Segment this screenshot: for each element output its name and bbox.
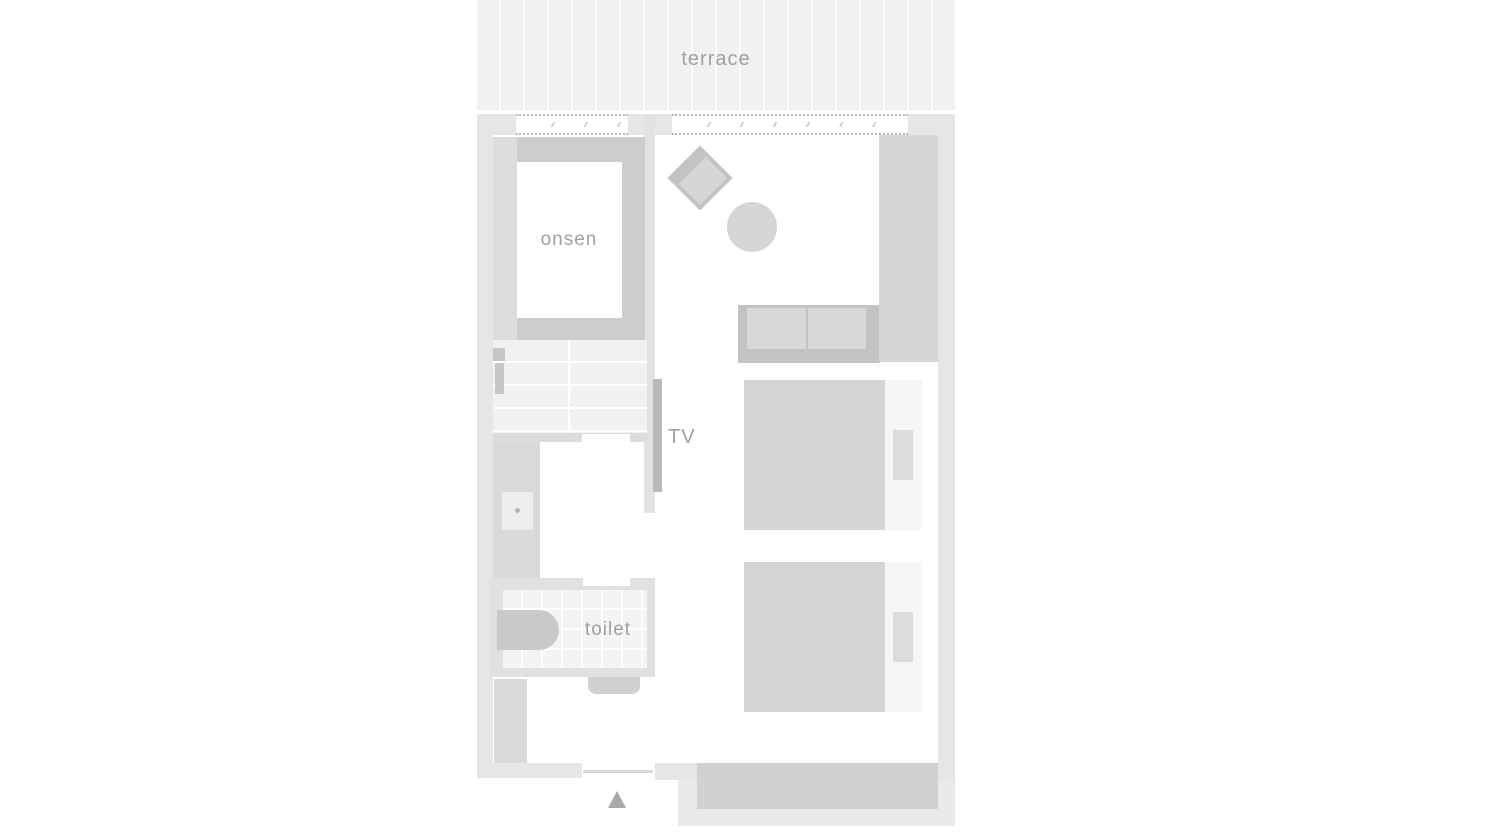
bed-duvet xyxy=(744,562,885,712)
armchair-seat xyxy=(679,157,727,205)
terrace-label: terrace xyxy=(477,48,955,71)
sofa-cushion xyxy=(808,308,866,349)
bed-pillow xyxy=(893,430,913,480)
toilet-door xyxy=(583,578,630,586)
shower-fixture xyxy=(493,348,505,361)
washing-area-door xyxy=(582,434,630,442)
bed-duvet xyxy=(744,380,885,530)
washing-area-tile-divider xyxy=(568,340,570,433)
sofa-cushion xyxy=(747,308,806,349)
genkan-floor xyxy=(697,763,938,809)
shower-bar xyxy=(495,363,504,394)
onsen-rim-top xyxy=(517,137,622,162)
armchair xyxy=(667,145,732,210)
sliding-window-left xyxy=(516,114,628,135)
entrance-arrow-icon xyxy=(608,791,626,808)
sliding-window-right xyxy=(672,114,908,135)
toilet-bowl xyxy=(497,610,559,650)
wall-right xyxy=(938,114,955,826)
wall-left xyxy=(477,114,493,778)
round-table xyxy=(727,202,777,252)
tv-label: TV xyxy=(668,426,708,449)
onsen-label: onsen xyxy=(493,229,645,251)
onsen-rim-bottom xyxy=(517,318,622,340)
wall-bottom-left xyxy=(477,763,582,778)
faucet-dot xyxy=(515,508,520,513)
entrance-door xyxy=(583,770,653,773)
washing-area-tiles xyxy=(493,340,647,433)
shoe-closet xyxy=(494,679,527,763)
floor-plan: terrace onsen toilet TV xyxy=(0,0,1490,838)
bed-pillow xyxy=(893,612,913,662)
toilet-label: toilet xyxy=(558,619,658,641)
hand-basin xyxy=(588,677,640,694)
tv-unit xyxy=(653,379,662,492)
wardrobe xyxy=(879,135,938,362)
